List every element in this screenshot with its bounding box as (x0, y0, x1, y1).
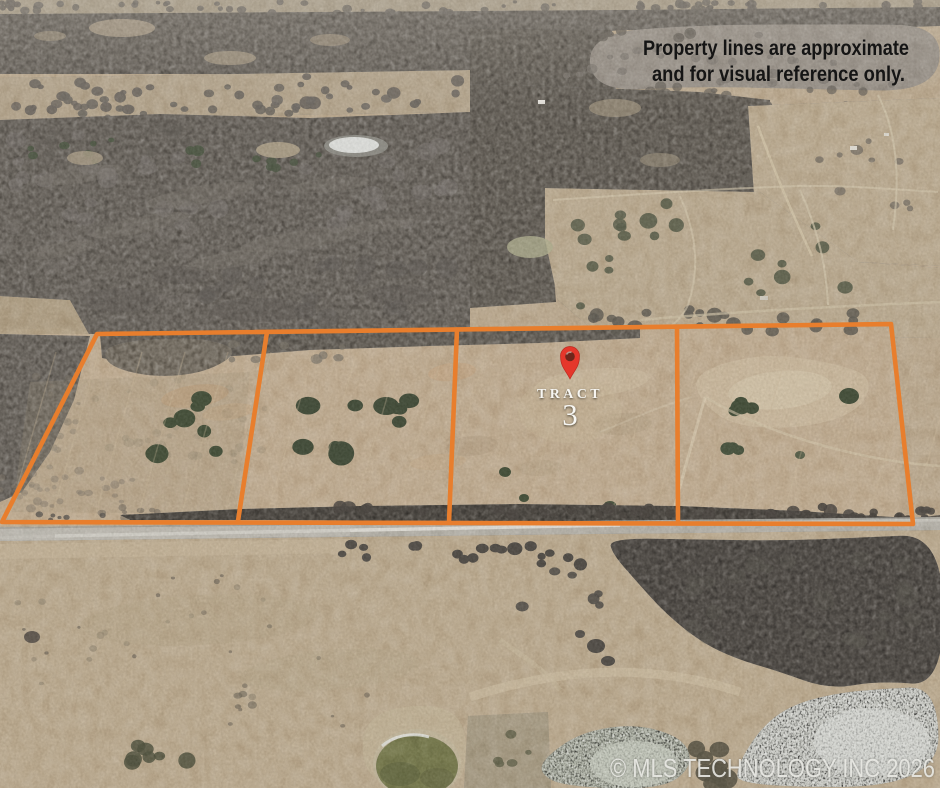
svg-text:Property lines are approximate: Property lines are approximate (643, 36, 909, 60)
svg-text:3: 3 (562, 397, 578, 432)
svg-text:and for visual reference only.: and for visual reference only. (652, 62, 905, 86)
svg-text:© MLS TECHNOLOGY INC 2026: © MLS TECHNOLOGY INC 2026 (610, 753, 935, 783)
